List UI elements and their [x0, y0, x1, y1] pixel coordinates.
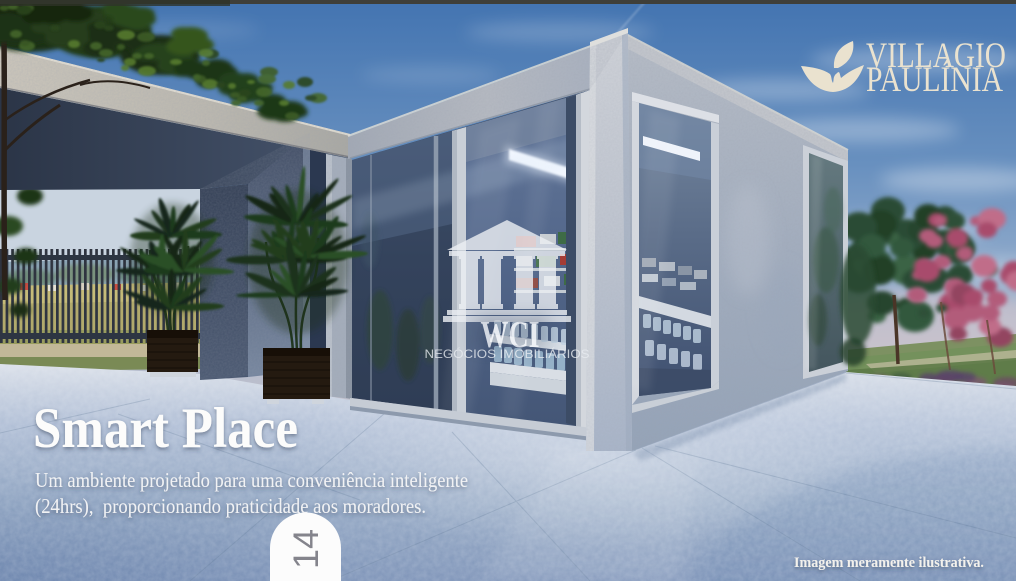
svg-text:Um ambiente projetado para uma: Um ambiente projetado para uma conveniên… — [35, 469, 468, 492]
svg-text:14: 14 — [286, 529, 325, 569]
svg-text:Smart Place: Smart Place — [33, 396, 298, 459]
svg-text:PAULÍNIA: PAULÍNIA — [866, 59, 1003, 99]
svg-text:(24hrs), proporcionando prati: (24hrs), proporcionando praticidade aos … — [35, 495, 426, 518]
svg-text:Imagem meramente ilustrativa.: Imagem meramente ilustrativa. — [794, 555, 984, 571]
svg-text:NEGÓCIOS IMOBILIÁRIOS: NEGÓCIOS IMOBILIÁRIOS — [424, 347, 589, 361]
